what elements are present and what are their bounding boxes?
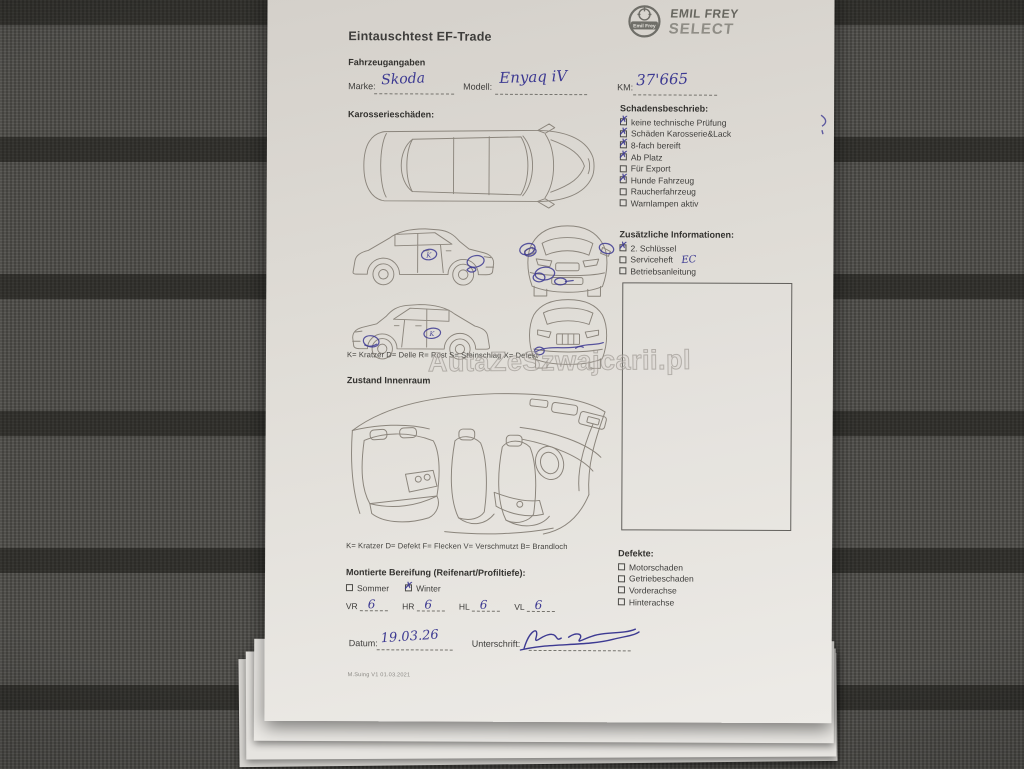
checkbox-item: 2. Schlüssel xyxy=(619,242,819,254)
section-schadensbeschrieb: Schadensbeschrieb: keine technische Prüf… xyxy=(620,103,820,210)
brand-wordmark: EMIL FREY SELECT xyxy=(668,7,740,38)
unterschrift-label: Unterschrift: xyxy=(472,639,521,649)
notes-box xyxy=(621,282,792,531)
checkbox-label: Betriebsanleitung xyxy=(630,266,696,276)
checkbox-item: Raucherfahrzeug xyxy=(620,186,820,198)
form-title: Eintauschtest EF-Trade xyxy=(348,29,491,44)
brand-line-emil-frey: EMIL FREY xyxy=(670,7,740,21)
tire-type-options: Sommer Winter xyxy=(346,582,441,594)
checkbox-square-icon xyxy=(619,268,626,275)
checkbox-square-icon xyxy=(618,598,625,605)
tire-vr: VR 6 xyxy=(346,599,388,611)
tire-label: VL xyxy=(514,602,524,612)
checkbox-label: Sommer xyxy=(357,583,389,593)
section-fahrzeugangaben: Fahrzeugangaben xyxy=(348,57,425,67)
section-karosserieschaeden: Karosserieschäden: xyxy=(348,109,434,119)
checkbox-square-icon xyxy=(405,585,412,592)
checkbox-item: Schäden Karosserie&Lack xyxy=(620,128,820,140)
checkbox-label: Hunde Fahrzeug xyxy=(631,175,694,185)
car-interior-diagram xyxy=(345,387,612,536)
datum-value-handwritten: 19.03.26 xyxy=(380,628,439,647)
marke-line xyxy=(374,93,454,94)
checkbox-winter: Winter xyxy=(405,582,441,594)
section-defekte: Defekte: Motorschaden Getriebeschaden Vo… xyxy=(618,548,818,608)
tire-hr: HR 6 xyxy=(402,599,444,611)
form-version-footer: M.Suing V1 01.03.2021 xyxy=(348,672,411,678)
checkbox-square-icon xyxy=(618,564,625,571)
tire-label: VR xyxy=(346,601,358,611)
checkbox-sommer: Sommer xyxy=(346,582,389,594)
tire-depth-row: VR 6 HR 6 HL 6 VL 6 xyxy=(346,596,565,615)
checkbox-label: Hinterachse xyxy=(629,597,674,607)
modell-label: Modell: xyxy=(463,82,492,92)
schadensbeschrieb-list: keine technische Prüfung Schäden Karosse… xyxy=(620,116,820,210)
tire-value-handwritten: 6 xyxy=(527,600,555,612)
svg-text:K: K xyxy=(425,251,432,259)
checkbox-item: keine technische Prüfung xyxy=(620,116,820,128)
signature-scrawl xyxy=(517,622,642,657)
tire-label: HL xyxy=(459,602,470,612)
marke-label: Marke: xyxy=(348,81,376,91)
checkbox-item: Für Export xyxy=(620,163,820,175)
checkbox-item: Warnlampen aktiv xyxy=(620,197,820,209)
tire-vl: VL 6 xyxy=(514,600,554,612)
body-damage-legend: K= Kratzer D= Delle R= Rost S= Steinschl… xyxy=(347,350,538,360)
checkbox-label: Serviceheft xyxy=(630,255,673,265)
checkbox-label: keine technische Prüfung xyxy=(631,117,726,127)
emil-frey-emblem-icon: Emil Frey xyxy=(626,3,662,39)
svg-text:K: K xyxy=(428,330,435,338)
tire-value-handwritten: 6 xyxy=(416,599,444,611)
tire-label: HR xyxy=(402,601,414,611)
zusaetzliche-list: 2. Schlüssel ServiceheftEC Betriebsanlei… xyxy=(619,242,819,278)
defekte-heading: Defekte: xyxy=(618,548,818,559)
tire-value-handwritten: 6 xyxy=(472,600,500,612)
checkbox-label: Für Export xyxy=(631,164,671,174)
modell-value-handwritten: Enyaq iV xyxy=(499,67,568,87)
checkbox-label: Motorschaden xyxy=(629,562,683,572)
checkbox-item: Getriebeschaden xyxy=(618,573,818,585)
checkbox-label: 2. Schlüssel xyxy=(630,243,676,253)
datum-label: Datum: xyxy=(349,638,378,648)
section-zustand-innenraum: Zustand Innenraum xyxy=(347,375,431,385)
section-bereifung: Montierte Bereifung (Reifenart/Profiltie… xyxy=(346,567,526,578)
checkbox-square-icon xyxy=(346,584,353,591)
checkbox-square-icon xyxy=(618,587,625,594)
tire-value-handwritten: 6 xyxy=(360,599,388,611)
checkbox-label: Getriebeschaden xyxy=(629,574,694,584)
checkbox-label: Schäden Karosserie&Lack xyxy=(631,129,731,139)
checkbox-item: Hinterachse xyxy=(618,596,818,608)
checkbox-square-icon xyxy=(620,177,627,184)
schadensbeschrieb-heading: Schadensbeschrieb: xyxy=(620,103,820,114)
checkbox-label: 8-fach bereift xyxy=(631,140,681,150)
km-value-handwritten: 37'665 xyxy=(636,70,688,90)
checkbox-item: Motorschaden xyxy=(618,561,818,573)
svg-text:Emil Frey: Emil Frey xyxy=(633,23,656,29)
checkbox-square-icon xyxy=(620,153,627,160)
modell-line xyxy=(495,94,587,95)
km-label: KM: xyxy=(617,82,633,92)
checkbox-label: Raucherfahrzeug xyxy=(631,187,696,197)
checkbox-square-icon xyxy=(620,188,627,195)
checkbox-item: ServiceheftEC xyxy=(619,254,819,266)
checkbox-item: Hunde Fahrzeug xyxy=(620,174,820,186)
checkbox-item: Vorderachse xyxy=(618,584,818,596)
zusaetzliche-heading: Zusätzliche Informationen: xyxy=(620,229,820,240)
car-top-view-diagram xyxy=(347,122,611,209)
checkbox-item: Betriebsanleitung xyxy=(619,265,819,277)
car-front-view-diagram xyxy=(516,216,618,298)
checkbox-square-icon xyxy=(619,245,626,252)
checkbox-label: Ab Platz xyxy=(631,152,663,162)
checkbox-item: Ab Platz xyxy=(620,151,820,163)
checkbox-label: Warnlampen aktiv xyxy=(631,198,699,208)
serviceheft-handwritten-note: EC xyxy=(681,254,697,266)
defekte-list: Motorschaden Getriebeschaden Vorderachse… xyxy=(618,561,818,608)
interior-damage-legend: K= Kratzer D= Defekt F= Flecken V= Versc… xyxy=(346,541,567,551)
section-zusaetzliche-informationen: Zusätzliche Informationen: 2. Schlüssel … xyxy=(619,229,819,278)
checkbox-square-icon xyxy=(618,575,625,582)
checkbox-square-icon xyxy=(619,256,626,263)
car-side-right-diagram: K xyxy=(342,217,502,294)
checkbox-item: 8-fach bereift xyxy=(620,139,820,151)
km-line xyxy=(633,94,717,95)
datum-line xyxy=(377,649,453,650)
inspection-form-sheet: Eintauschtest EF-Trade Emil Frey EMIL FR… xyxy=(264,0,834,723)
marke-value-handwritten: Skoda xyxy=(381,70,426,88)
checkbox-label: Winter xyxy=(416,583,441,593)
tire-hl: HL 6 xyxy=(459,600,500,612)
checkbox-label: Vorderachse xyxy=(629,585,677,595)
brand-line-select: SELECT xyxy=(668,21,738,38)
ink-mark-page-edge xyxy=(815,113,833,139)
checkbox-square-icon xyxy=(620,200,627,207)
